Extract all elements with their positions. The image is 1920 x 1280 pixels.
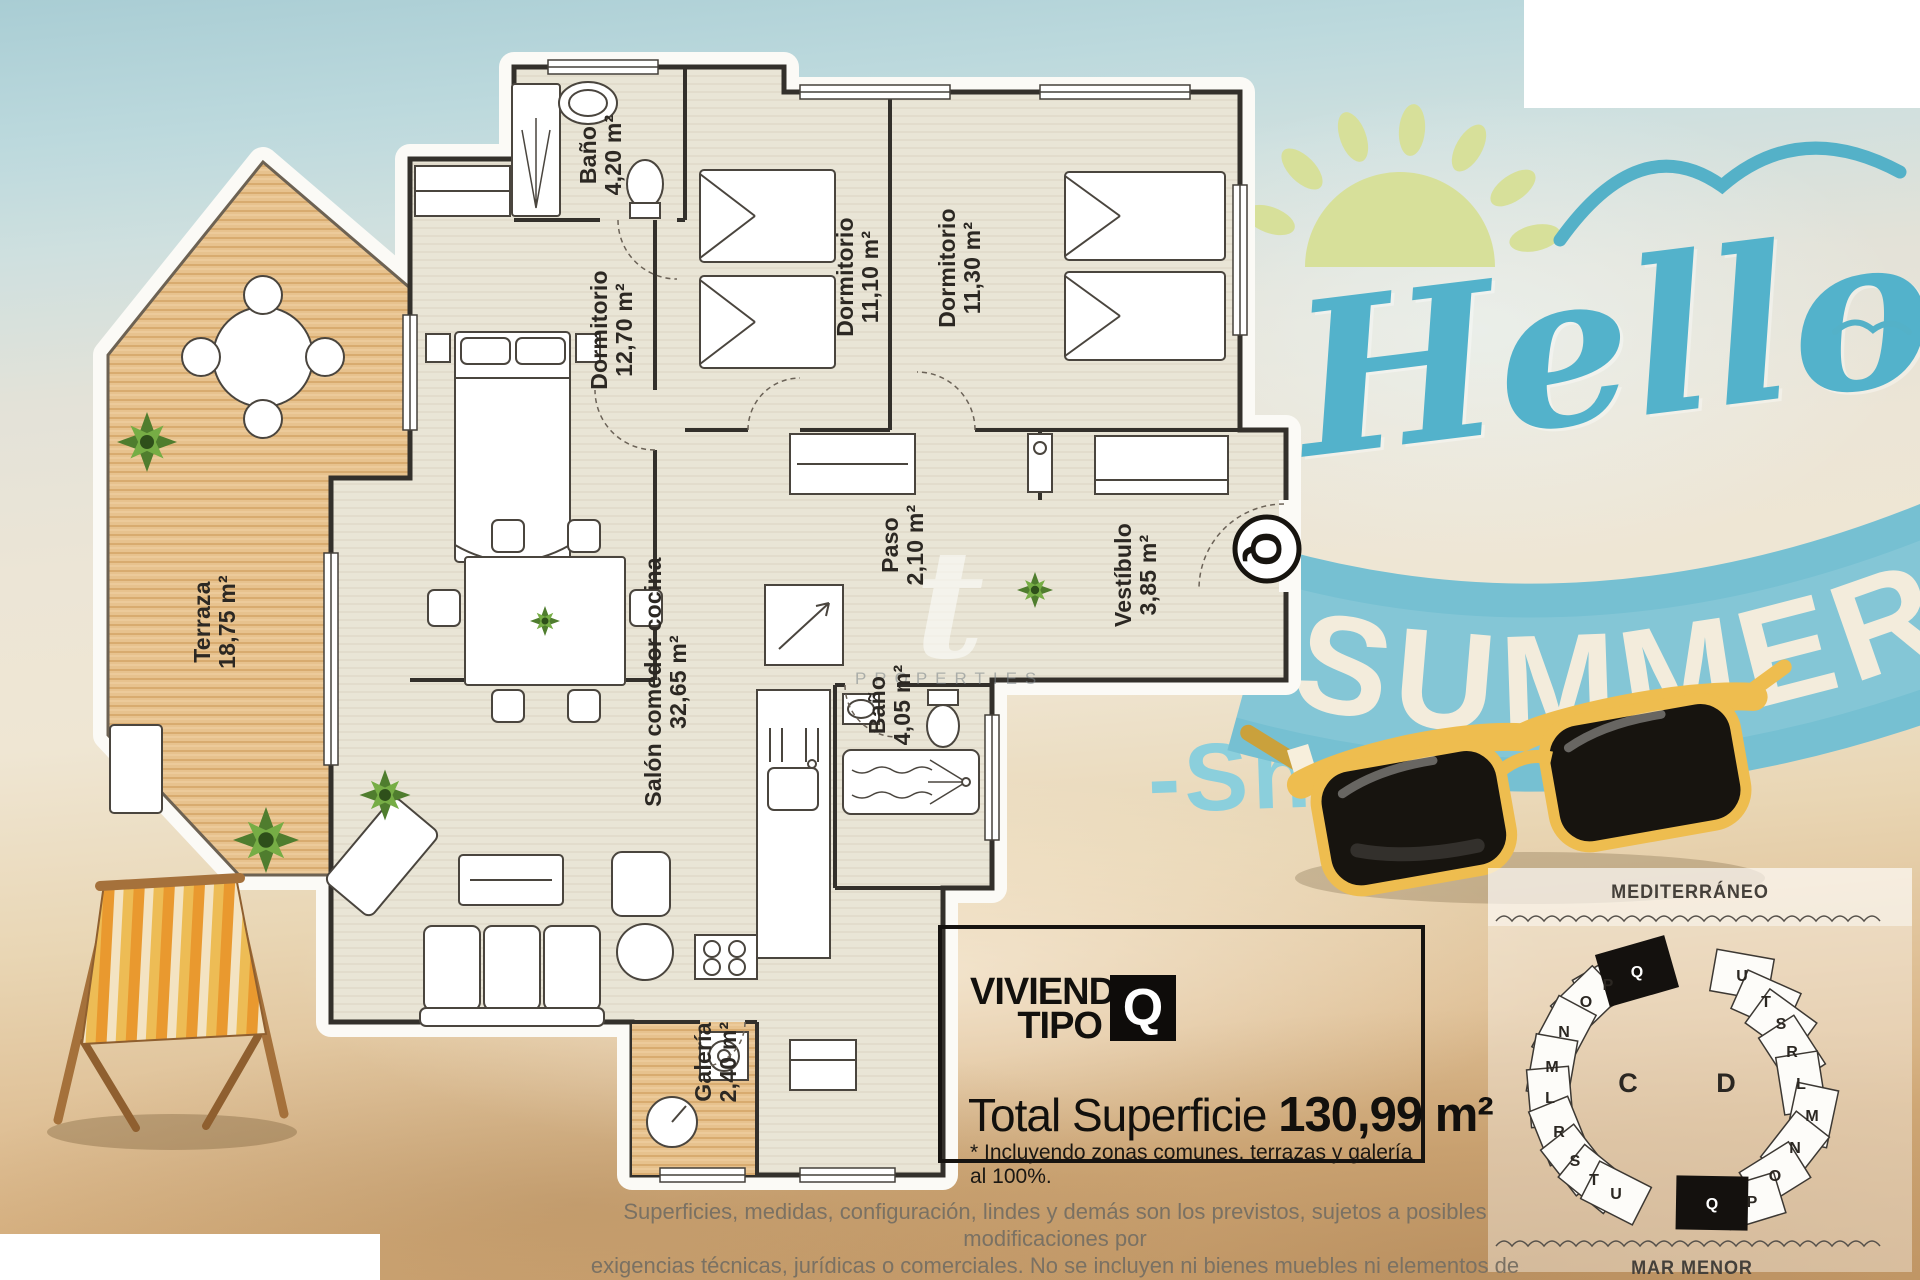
room-label-vestibulo: Vestíbulo3,85 m² xyxy=(1111,523,1161,627)
flyer-canvas: SUMMER xyxy=(0,0,1920,1280)
room-label-dormitorio-3: Dormitorio11,30 m² xyxy=(935,208,985,328)
svg-text:U: U xyxy=(1610,1186,1622,1203)
block-d-label: D xyxy=(1716,1068,1736,1098)
room-label-dormitorio-1: Dormitorio12,70 m² xyxy=(587,270,637,390)
total-surface-line: Total Superficie 130,99 m² xyxy=(968,1087,1493,1143)
svg-text:M: M xyxy=(1805,1108,1818,1125)
room-label-banio-2: Baño4,05 m² xyxy=(865,665,915,746)
legal-disclaimer: Superficies, medidas, configuración, lin… xyxy=(555,1198,1555,1280)
unit-info-box: VIVIENDA TIPO Q Total Superficie 130,99 … xyxy=(938,925,1425,1163)
svg-text:S: S xyxy=(1776,1016,1787,1033)
svg-text:P: P xyxy=(1747,1194,1758,1211)
room-label-terraza: Terraza18,75 m² xyxy=(190,575,240,669)
unit-badge: Q xyxy=(1235,517,1299,581)
svg-text:Q: Q xyxy=(1631,964,1643,981)
svg-text:R: R xyxy=(1786,1044,1798,1061)
svg-text:N: N xyxy=(1558,1024,1570,1041)
bird-icon xyxy=(1560,148,1909,332)
sun-icon xyxy=(1241,103,1563,267)
room-label-paso: Paso2,10 m² xyxy=(878,505,928,586)
deck-chair-graphic xyxy=(47,877,297,1150)
svg-text:M: M xyxy=(1545,1059,1558,1076)
sea-label-mar-menor: MAR MENOR xyxy=(1631,1258,1753,1280)
blank-corner-block-top-right xyxy=(1524,0,1920,108)
svg-text:T: T xyxy=(1589,1172,1599,1189)
sea-label-mediterraneo: MEDITERRÁNEO xyxy=(1611,882,1769,904)
svg-text:P: P xyxy=(1603,977,1614,994)
unit-type-letter-badge: Q xyxy=(1110,975,1176,1041)
svg-text:T: T xyxy=(1761,994,1771,1011)
svg-text:L: L xyxy=(1796,1076,1806,1093)
svg-text:S: S xyxy=(1570,1153,1581,1170)
room-label-salon: Salón comedor cocina32,65 m² xyxy=(641,557,691,806)
svg-text:R: R xyxy=(1553,1124,1565,1141)
svg-text:L: L xyxy=(1545,1090,1555,1107)
svg-text:U: U xyxy=(1736,968,1748,985)
room-label-dormitorio-2: Dormitorio11,10 m² xyxy=(833,217,883,337)
svg-text:O: O xyxy=(1769,1168,1781,1185)
svg-text:O: O xyxy=(1580,994,1592,1011)
block-c-label: C xyxy=(1618,1068,1638,1098)
room-label-galeria: Galería2,40 m² xyxy=(691,1022,741,1103)
blank-corner-block-bottom-left xyxy=(0,1234,380,1280)
total-surface-note: * Incluyendo zonas comunes, terrazas y g… xyxy=(970,1141,1421,1189)
unit-badge-letter: Q xyxy=(1241,532,1290,566)
unit-type-title: VIVIENDA TIPO xyxy=(970,975,1102,1043)
room-label-banio-1: Baño4,20 m² xyxy=(576,115,626,196)
svg-text:N: N xyxy=(1789,1140,1801,1157)
svg-text:Q: Q xyxy=(1706,1196,1718,1213)
